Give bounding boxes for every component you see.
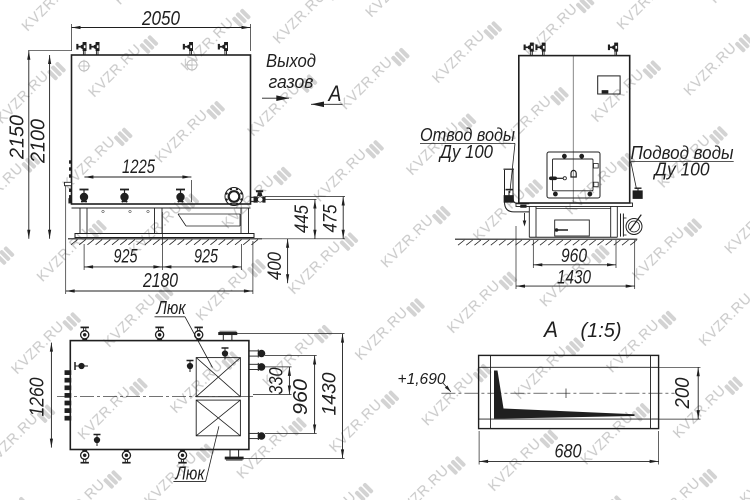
svg-text:2180: 2180 xyxy=(142,270,178,292)
svg-text:2100: 2100 xyxy=(28,119,50,164)
svg-text:А: А xyxy=(327,81,342,106)
svg-text:1430: 1430 xyxy=(320,372,341,415)
svg-text:А: А xyxy=(542,317,558,342)
svg-text:960: 960 xyxy=(561,246,587,267)
svg-text:(1:5): (1:5) xyxy=(581,320,622,342)
svg-text:200: 200 xyxy=(672,378,694,410)
svg-text:газов: газов xyxy=(269,72,314,92)
svg-text:2150: 2150 xyxy=(7,115,29,160)
svg-text:Люк: Люк xyxy=(175,464,206,484)
svg-text:+1,690: +1,690 xyxy=(398,371,446,388)
svg-text:925: 925 xyxy=(114,247,138,268)
svg-text:960: 960 xyxy=(290,379,312,415)
svg-text:400: 400 xyxy=(265,252,286,280)
svg-text:2050: 2050 xyxy=(141,8,180,30)
svg-text:Выход: Выход xyxy=(266,51,316,71)
svg-text:475: 475 xyxy=(321,204,342,232)
svg-text:1430: 1430 xyxy=(557,268,591,289)
svg-text:Ду 100: Ду 100 xyxy=(438,142,493,162)
svg-text:Люк: Люк xyxy=(156,298,187,318)
svg-text:330: 330 xyxy=(267,367,288,394)
svg-text:Ду 100: Ду 100 xyxy=(653,160,710,180)
svg-text:925: 925 xyxy=(194,247,218,268)
svg-text:1260: 1260 xyxy=(27,378,49,417)
svg-text:1225: 1225 xyxy=(122,157,155,178)
svg-text:445: 445 xyxy=(292,205,313,233)
svg-text:680: 680 xyxy=(555,442,582,463)
